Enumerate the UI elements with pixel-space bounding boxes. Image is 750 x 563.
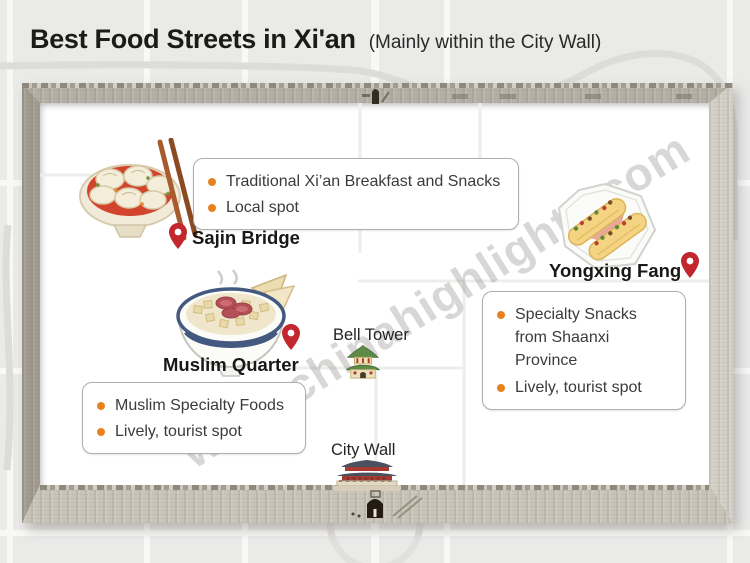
- note-item: Lively, tourist spot: [95, 420, 293, 443]
- south-gate-icon: [345, 490, 425, 520]
- wall-detail: [452, 94, 468, 99]
- wall-west: [22, 83, 40, 523]
- muslim-quarter-callout: Muslim Specialty Foods Lively, tourist s…: [82, 382, 306, 454]
- sajin-bridge-pin-icon: [169, 223, 187, 249]
- wall-detail: [500, 94, 516, 99]
- wall-east: [709, 83, 733, 523]
- note-item: Traditional Xi’an Breakfast and Snacks: [206, 170, 506, 193]
- page-subtitle: (Mainly within the City Wall): [369, 32, 602, 54]
- bullet-icon: [497, 311, 505, 319]
- muslim-quarter-pin-icon: [282, 324, 300, 350]
- page-title: Best Food Streets in Xi'an: [30, 24, 356, 55]
- roujiamo-plate-illustration: [557, 182, 657, 270]
- bullet-icon: [97, 428, 105, 436]
- note-item: Local spot: [206, 196, 506, 219]
- bell-tower-illustration: [346, 344, 380, 382]
- sajin-bridge-callout: Traditional Xi’an Breakfast and Snacks L…: [193, 158, 519, 230]
- infographic-canvas: Best Food Streets in Xi'an (Mainly withi…: [0, 0, 750, 563]
- header: Best Food Streets in Xi'an (Mainly withi…: [30, 24, 601, 55]
- bullet-icon: [497, 384, 505, 392]
- note-item: Lively, tourist spot: [495, 376, 673, 399]
- note-item: Muslim Specialty Foods: [95, 394, 293, 417]
- note-item: Specialty Snacks from Shaanxi Province: [495, 303, 673, 373]
- yongxing-fang-label: Yongxing Fang: [549, 260, 681, 282]
- bullet-icon: [97, 402, 105, 410]
- north-gate-icon: [360, 84, 390, 106]
- yongxing-fang-callout: Specialty Snacks from Shaanxi Province L…: [482, 291, 686, 410]
- city-gate-illustration: [334, 459, 400, 491]
- city-wall-label: City Wall: [331, 441, 395, 460]
- sajin-bridge-label: Sajin Bridge: [192, 227, 300, 249]
- bell-tower-label: Bell Tower: [333, 326, 409, 345]
- muslim-quarter-label: Muslim Quarter: [163, 354, 299, 376]
- bullet-icon: [208, 178, 216, 186]
- wall-detail: [585, 94, 601, 99]
- yongxing-fang-pin-icon: [681, 252, 699, 278]
- wall-detail: [676, 94, 692, 99]
- bullet-icon: [208, 204, 216, 212]
